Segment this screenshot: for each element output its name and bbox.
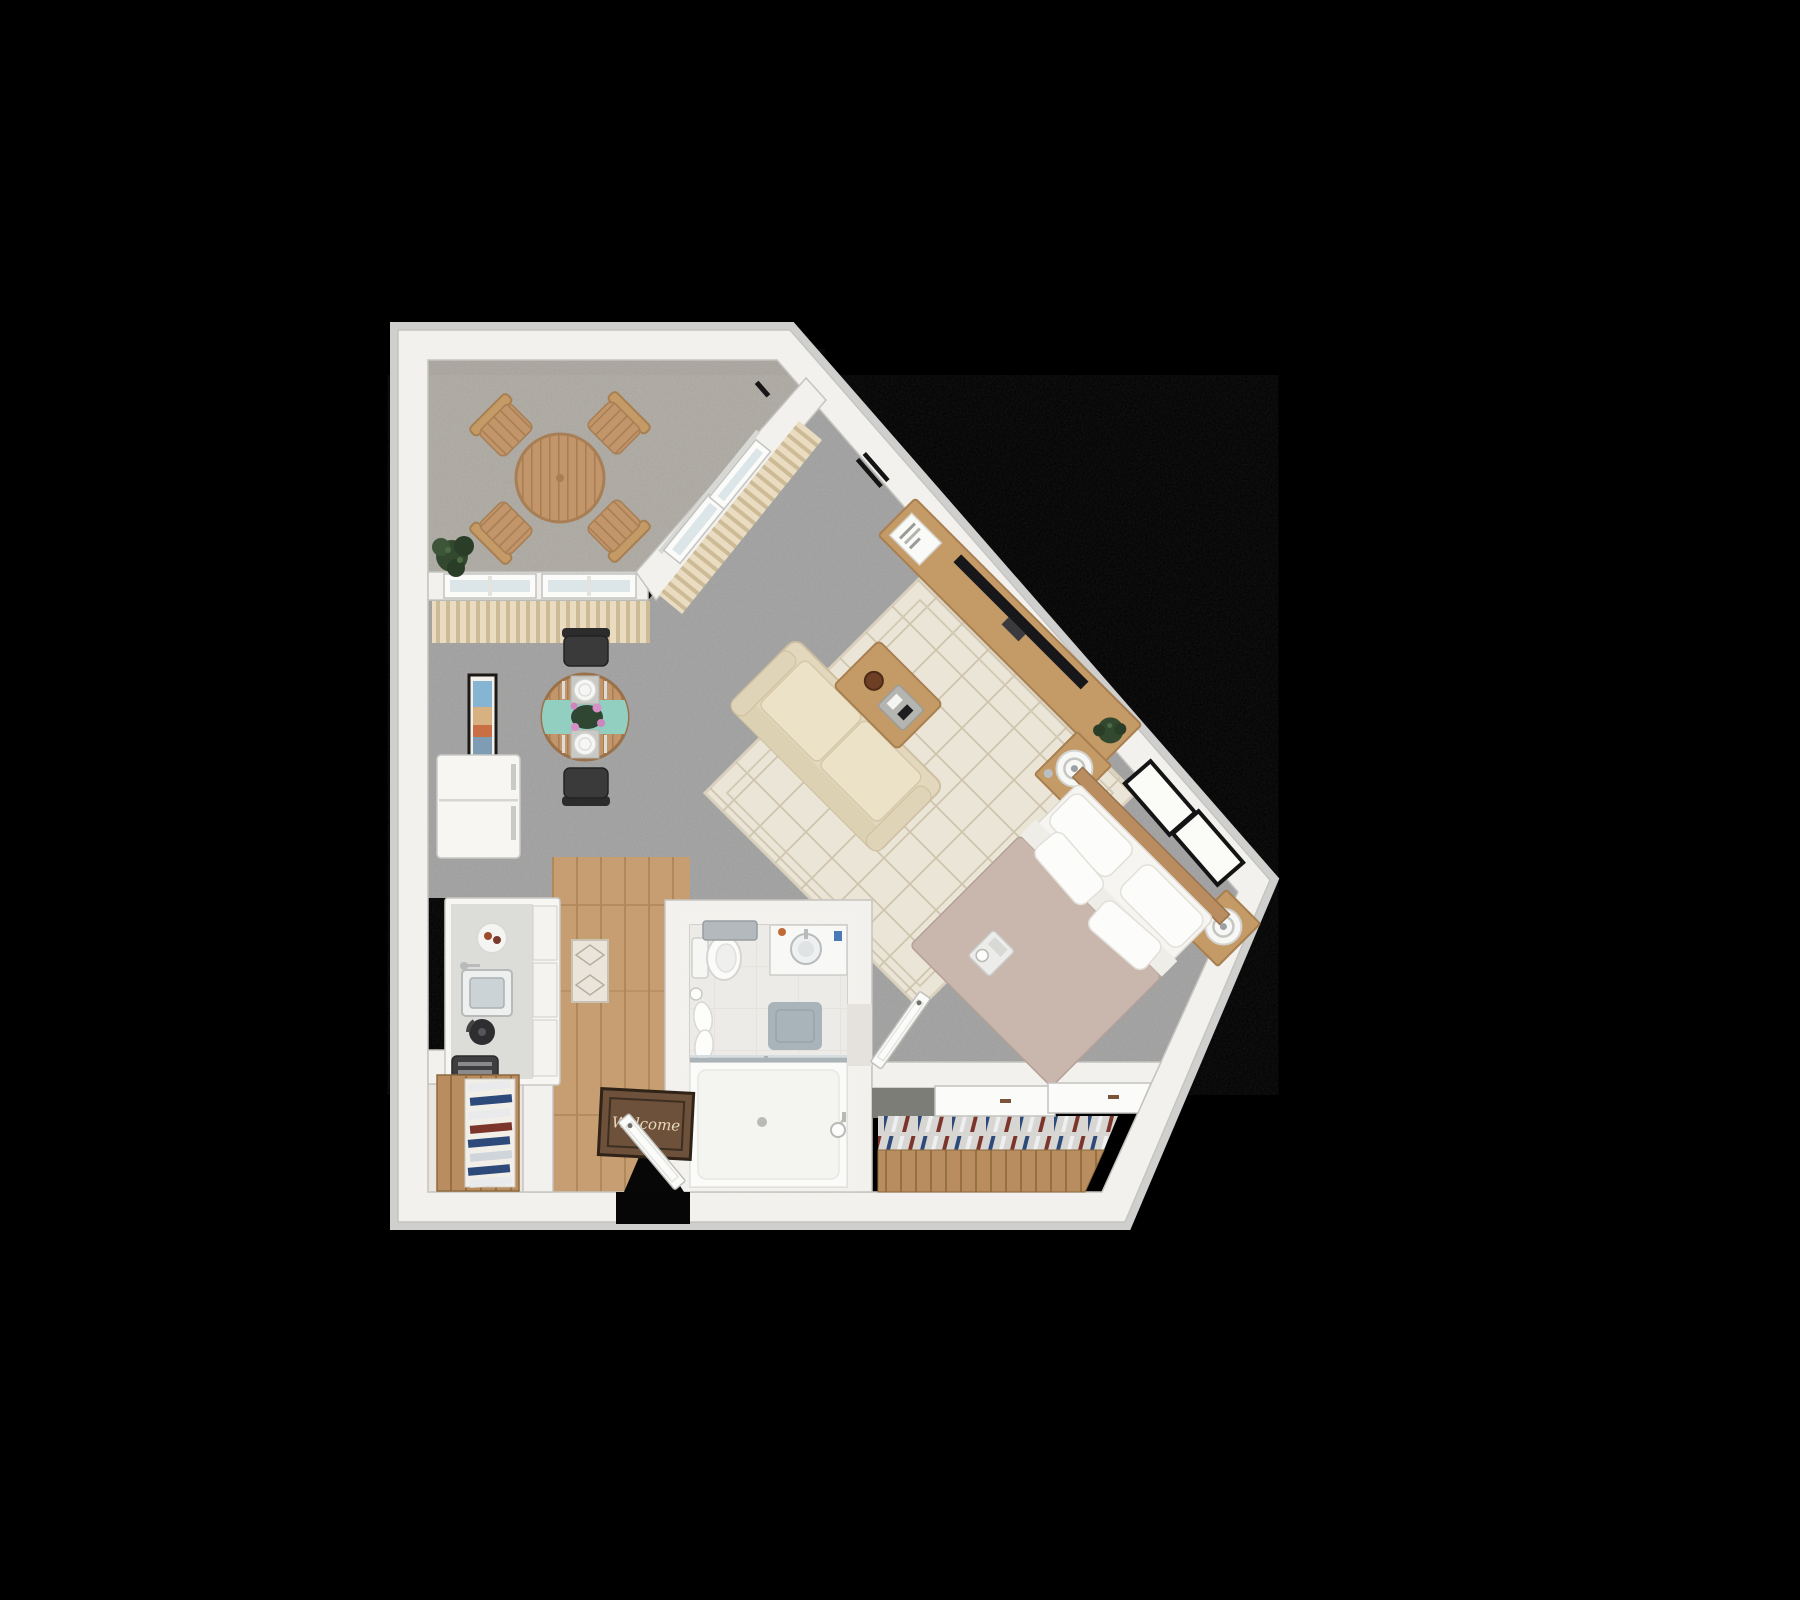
- toilet-paper: [690, 988, 702, 1000]
- dining-table: [540, 674, 630, 760]
- tub-shower: [690, 1056, 847, 1187]
- closet-door-left: [935, 1086, 1055, 1116]
- vanity: [770, 925, 847, 975]
- closet-door-right: [1048, 1083, 1151, 1113]
- soap-dish: [778, 928, 786, 936]
- cabinet-fronts: [533, 906, 557, 1076]
- tub-drain: [757, 1117, 767, 1127]
- flower-3: [571, 723, 579, 731]
- refrigerator: [437, 755, 520, 858]
- toothbrush-cup: [834, 931, 842, 941]
- patio-table-hole: [556, 474, 564, 482]
- towel-rack-towel: [703, 921, 757, 940]
- wall-art: [469, 675, 496, 761]
- kitchen-mat: [572, 940, 608, 1002]
- floor-plan-render: Welcome: [0, 0, 1800, 1600]
- closet-door-handle-right: [1108, 1095, 1119, 1099]
- closet-interior-shadow: [872, 1088, 935, 1118]
- shoe-shelf: [437, 1075, 519, 1191]
- flower-4: [571, 703, 578, 710]
- vertical-blinds-south: [432, 601, 650, 643]
- flower-1: [593, 704, 602, 713]
- flower-2: [597, 719, 605, 727]
- balcony-window-left: [444, 574, 536, 598]
- closet-sliding-doors: [935, 1083, 1151, 1116]
- entry-doorway-opening: [616, 1192, 690, 1224]
- screenshot-canvas: Welcome: [0, 0, 1800, 1600]
- serving-plate: [477, 923, 507, 953]
- balcony-window-right: [542, 574, 636, 598]
- kitchen-sink: [460, 962, 512, 1016]
- vanity-faucet: [804, 929, 808, 939]
- closet-door-handle-left: [1000, 1099, 1011, 1103]
- dining-chair-bottom: [562, 768, 610, 806]
- closet-wood-front: [878, 1150, 1104, 1192]
- toilet: [692, 936, 741, 980]
- kitchen-counter: [445, 898, 560, 1085]
- closet-hanging-clothes: [878, 1116, 1118, 1152]
- dining-chair-top: [562, 628, 610, 666]
- bathroom-doorway: [847, 1004, 872, 1066]
